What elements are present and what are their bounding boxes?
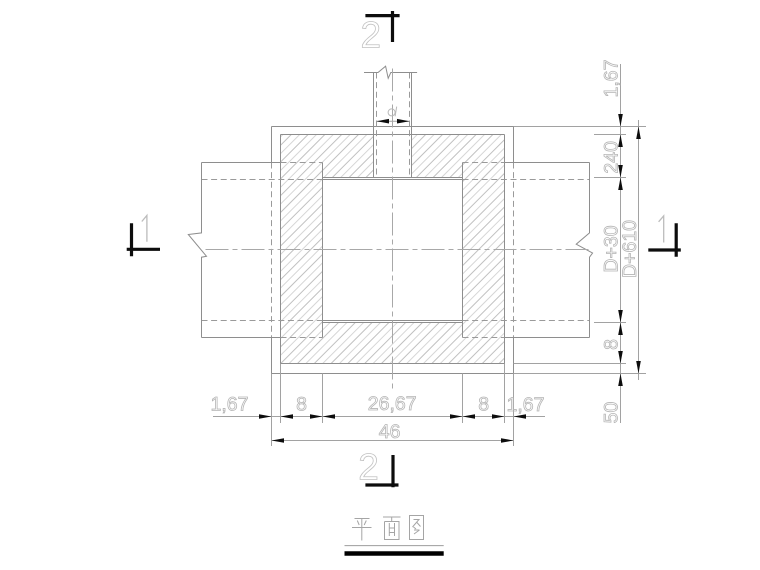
svg-text:1,67: 1,67 [211,394,249,416]
svg-text:8: 8 [601,339,623,350]
svg-text:2: 2 [358,447,379,488]
svg-text:8: 8 [478,394,489,416]
svg-text:26,67: 26,67 [368,393,417,415]
svg-text:D+610: D+610 [619,220,641,278]
svg-text:50: 50 [601,402,623,424]
svg-text:46: 46 [379,421,401,443]
svg-text:1,67: 1,67 [507,394,545,416]
svg-text:240: 240 [601,141,623,174]
svg-text:2: 2 [361,15,382,56]
svg-text:1,67: 1,67 [601,60,623,98]
svg-text:8: 8 [296,394,307,416]
